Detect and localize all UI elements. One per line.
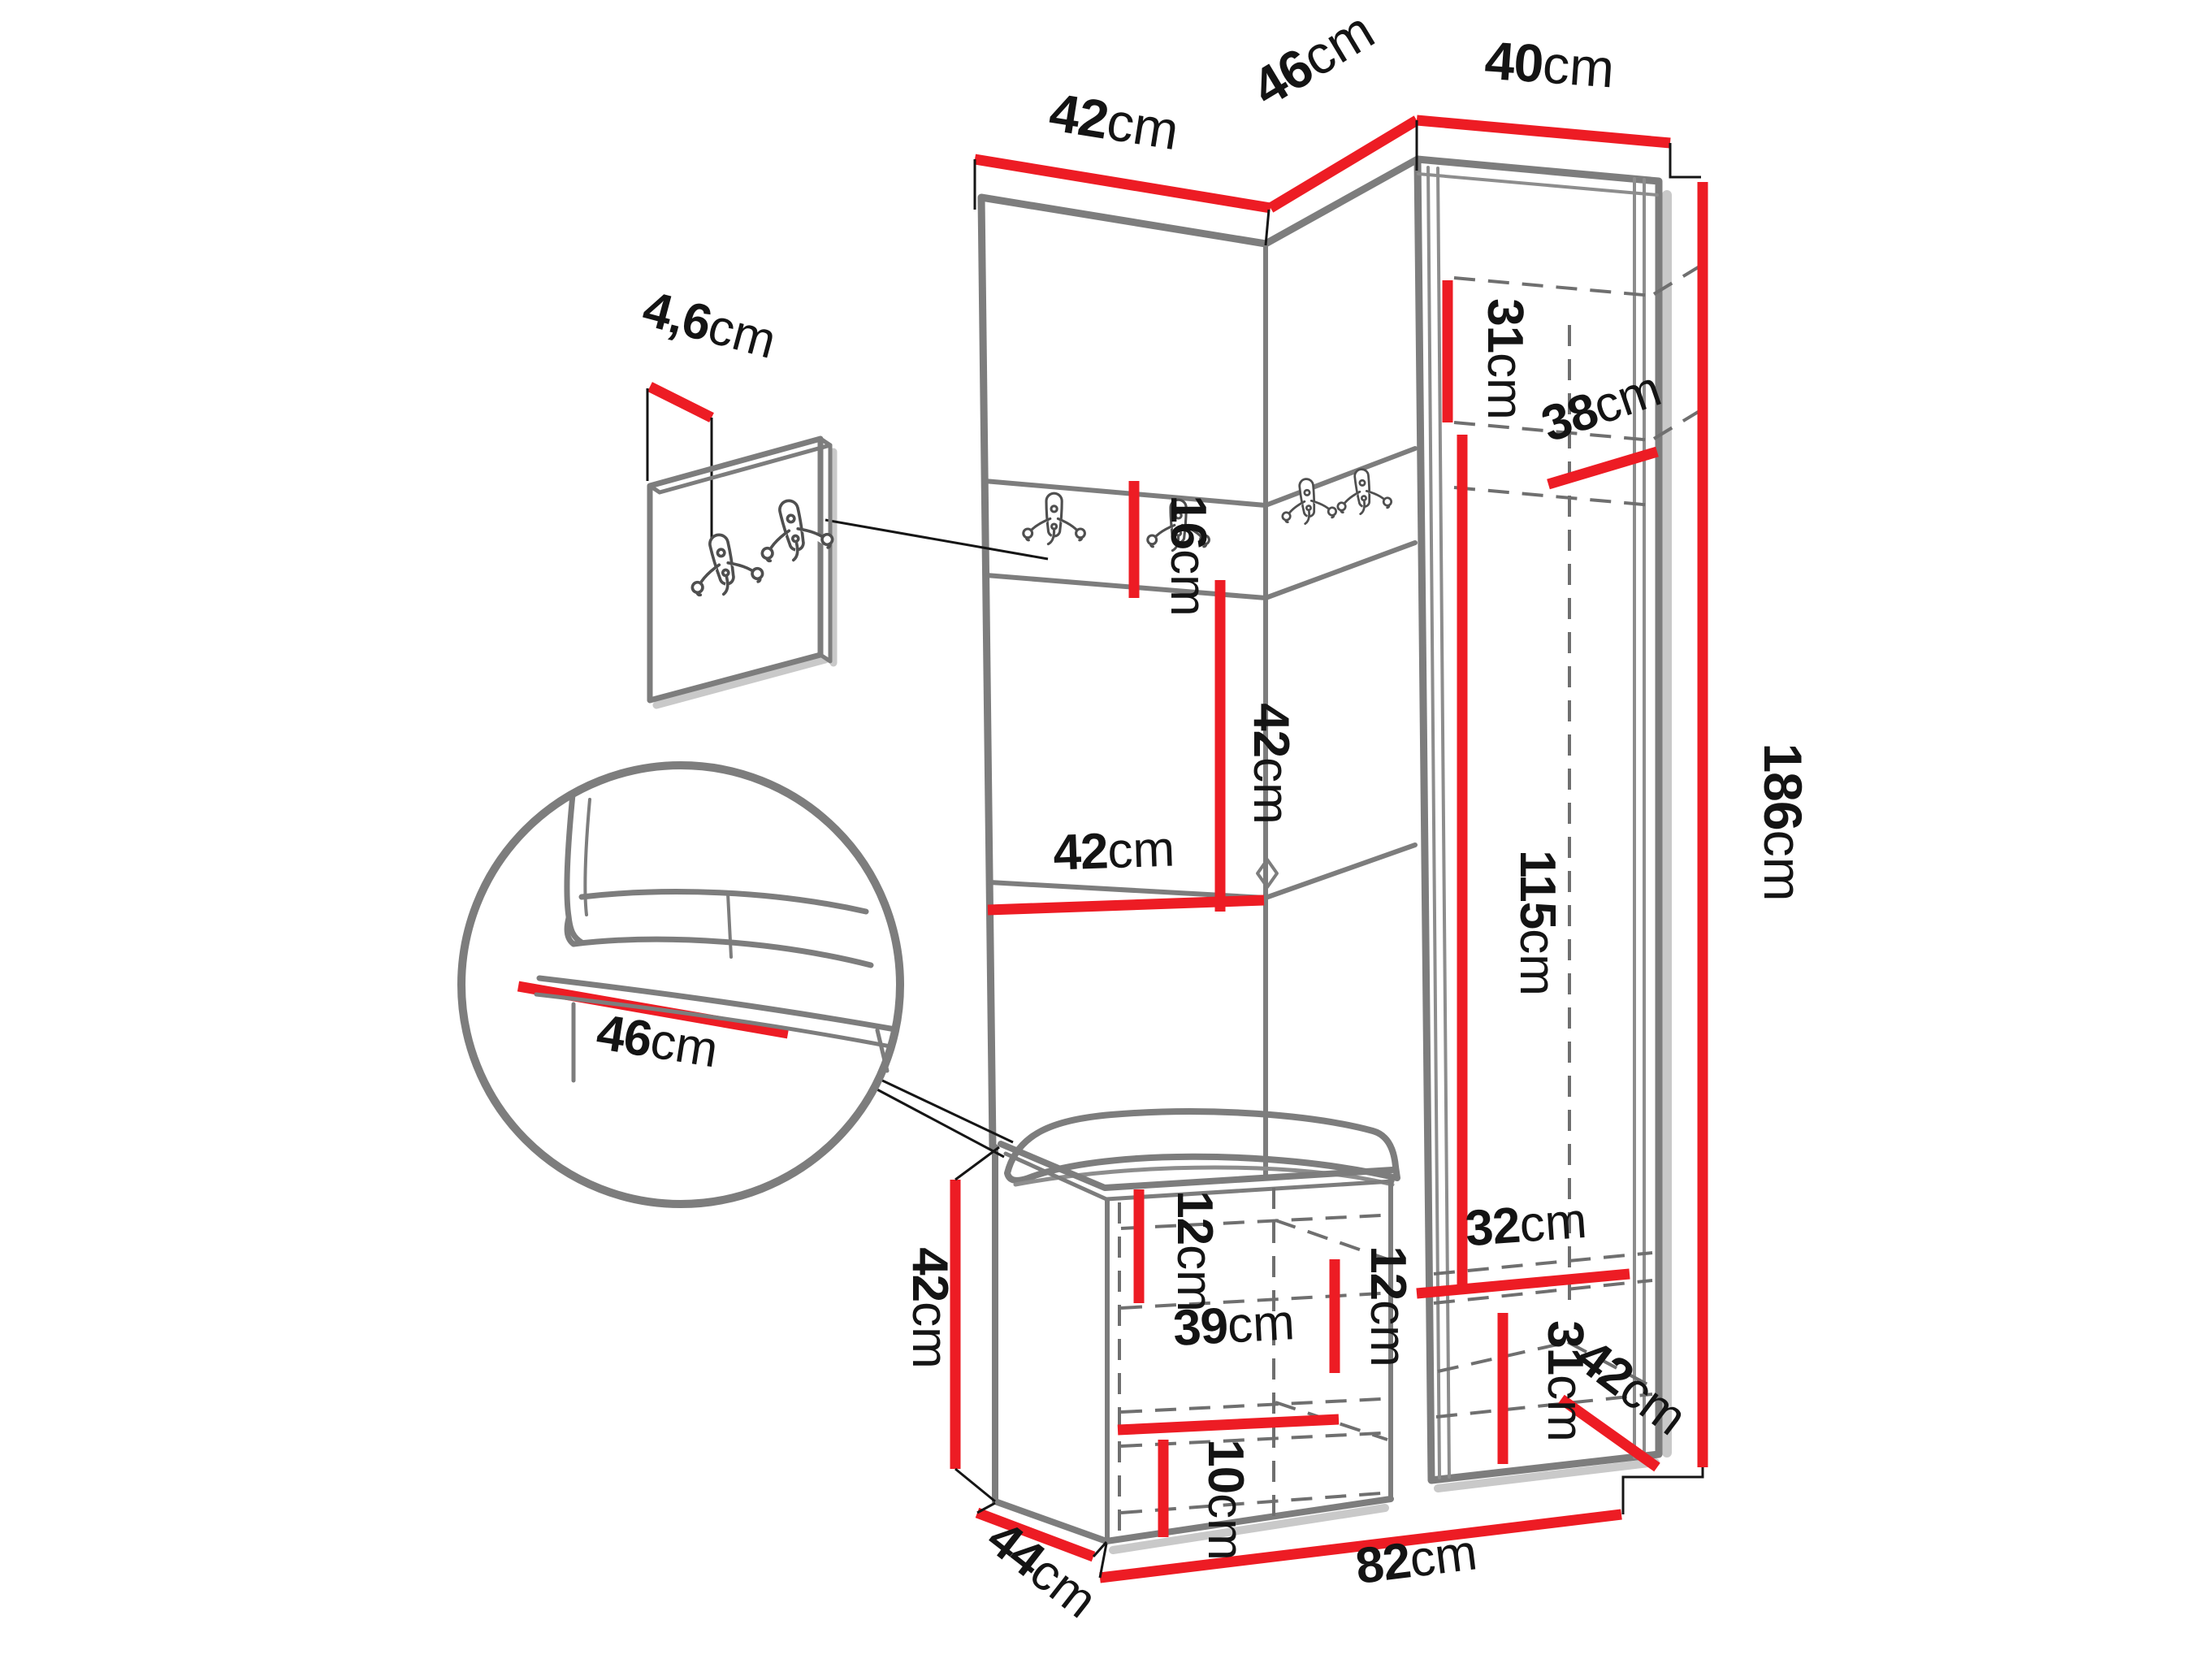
- label-back-panel-width: 42cm: [1052, 821, 1175, 881]
- label-bench-bottom-gap: 10cm: [1197, 1439, 1253, 1561]
- hook-board-detail: [650, 439, 835, 700]
- label-back-panel-height: 42cm: [1243, 703, 1299, 825]
- label-hook-board-thickness: 4,6cm: [637, 280, 781, 370]
- double-coat-hook-icon: [682, 527, 765, 601]
- label-total-height: 186cm: [1753, 743, 1813, 901]
- diagram-canvas: 42cm 46cm 40cm 186cm 31cm 38cm 115cm 32c…: [0, 0, 2212, 1659]
- label-cab-bottom-inner-width: 32cm: [1464, 1193, 1589, 1257]
- label-cab-inner-height: 115cm: [1509, 850, 1565, 996]
- label-top-corner-width: 46cm: [1242, 0, 1384, 118]
- hook-panel-leader-line: [825, 520, 1048, 559]
- furniture-dimension-diagram: 42cm 46cm 40cm 186cm 31cm 38cm 115cm 32c…: [0, 0, 2212, 1659]
- label-cab-top-section: 31cm: [1477, 298, 1533, 420]
- label-bench-shelf-width: 39cm: [1171, 1294, 1296, 1357]
- label-base-total-width: 82cm: [1353, 1524, 1480, 1595]
- detail-circle-leader-line: [874, 1088, 1004, 1157]
- label-bench-depth: 44cm: [976, 1510, 1106, 1629]
- label-cab-top-depth: 38cm: [1535, 361, 1668, 453]
- label-bench-top-gap: 12cm: [1167, 1190, 1223, 1312]
- label-hook-strip-height: 16cm: [1160, 495, 1216, 617]
- label-bench-right-gap: 12cm: [1360, 1245, 1416, 1367]
- label-top-right-width: 40cm: [1483, 30, 1617, 99]
- double-coat-hook-icon: [1024, 493, 1085, 544]
- label-bench-height: 42cm: [902, 1247, 958, 1369]
- wall-panel-section: [981, 159, 1418, 1176]
- label-top-left-width: 42cm: [1045, 81, 1183, 161]
